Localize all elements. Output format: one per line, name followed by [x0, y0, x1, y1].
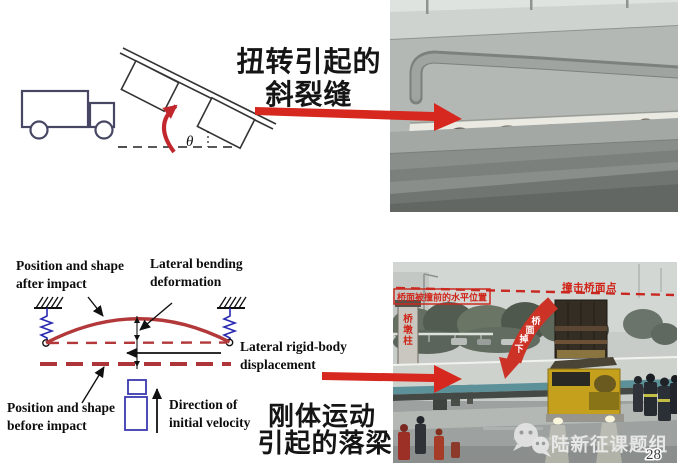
collision-photo: 撞击桥面点 桥面被撞前的水平位置 桥 墩 柱 桥 面 掉 下 [391, 262, 680, 463]
svg-text:墩: 墩 [403, 324, 413, 336]
fall-caption-line1: 刚体运动 [268, 401, 376, 431]
girder-left [121, 61, 178, 111]
label-velocity-1: Direction of [169, 397, 238, 412]
fall-caption-line2: 引起的落梁 [257, 428, 392, 458]
label-rigid-2: displacement [240, 357, 316, 372]
support-right [217, 297, 246, 308]
bottom-red-arrow [322, 365, 462, 393]
crack-photo [390, 0, 678, 212]
label-bending-2: deformation [150, 274, 222, 289]
impact-point-label: 撞击桥面点 [562, 281, 617, 294]
pointer-before-impact [82, 367, 104, 403]
spring-right [224, 308, 235, 340]
svg-text:桥面被撞前的水平位置: 桥面被撞前的水平位置 [397, 292, 487, 303]
label-velocity-2: initial velocity [169, 415, 251, 430]
girder-right [197, 98, 254, 148]
torsion-caption-line1: 扭转引起的 [236, 45, 381, 77]
label-after-impact-1: Position and shape [16, 258, 124, 273]
svg-text:下: 下 [514, 344, 523, 354]
pointer-bending [140, 303, 172, 330]
cargo-truck-on-bridge [555, 300, 607, 358]
label-after-impact-2: after impact [16, 276, 87, 291]
slide: θ 扭转引起的 斜裂缝 [0, 0, 684, 469]
pointer-after-impact [88, 297, 103, 316]
truck-side-icon [22, 91, 114, 139]
spring-left [41, 308, 52, 340]
page-number: 28 [646, 447, 661, 463]
pier-vertical-label: 桥 墩 柱 [403, 313, 413, 347]
svg-text:掉: 掉 [519, 333, 528, 344]
svg-text:桥: 桥 [403, 313, 413, 325]
truck-top-view [125, 380, 147, 430]
rotation-arrow [164, 106, 176, 152]
theta-label: θ [186, 134, 194, 150]
svg-text:柱: 柱 [403, 335, 413, 347]
torsion-caption-line2: 斜裂缝 [265, 78, 352, 110]
label-before-impact-2: before impact [7, 418, 87, 433]
label-bending-1: Lateral bending [150, 256, 243, 271]
label-before-impact-1: Position and shape [7, 400, 115, 415]
support-left [34, 297, 63, 308]
label-rigid-1: Lateral rigid-body [240, 339, 347, 354]
